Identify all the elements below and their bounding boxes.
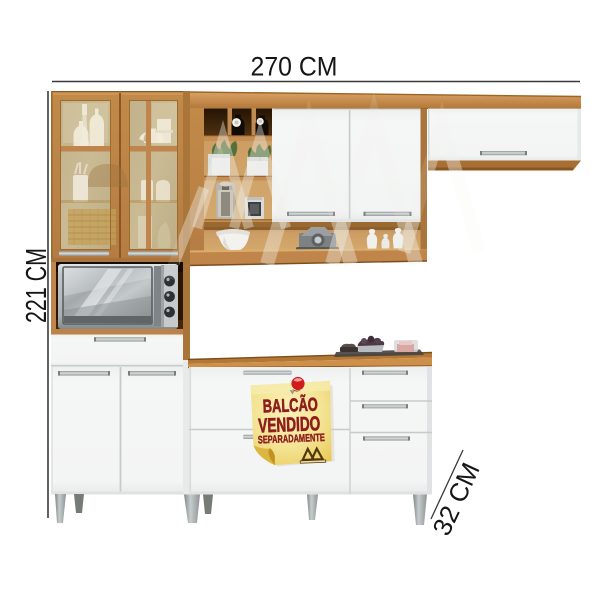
svg-text:221 CM: 221 CM — [21, 248, 53, 323]
svg-text:SEPARADAMENTE: SEPARADAMENTE — [258, 432, 325, 447]
svg-text:270 CM: 270 CM — [251, 52, 338, 82]
